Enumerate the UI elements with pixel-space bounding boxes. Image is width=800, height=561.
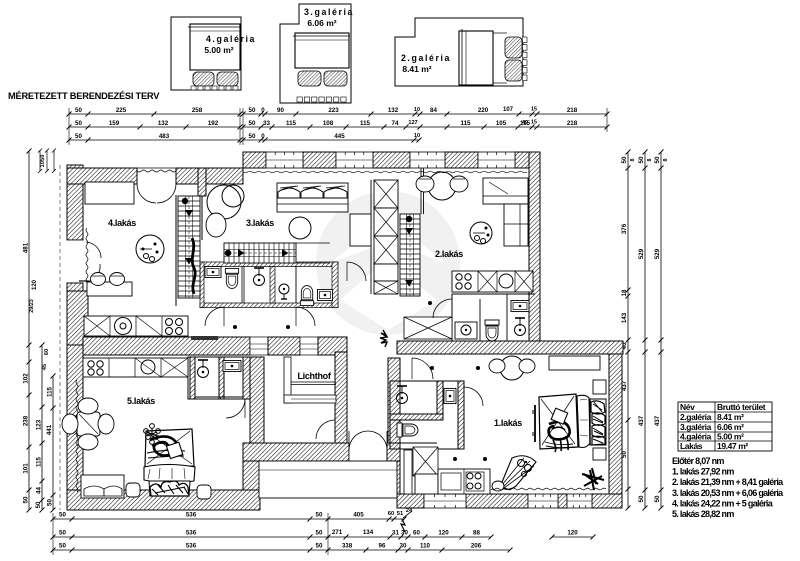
- svg-text:29/23: 29/23: [29, 299, 35, 313]
- svg-text:60: 60: [413, 530, 420, 537]
- svg-text:132: 132: [388, 107, 399, 114]
- svg-text:536: 536: [186, 530, 197, 537]
- svg-text:88: 88: [473, 530, 480, 537]
- svg-text:4.galéria: 4.galéria: [206, 34, 256, 44]
- svg-text:50: 50: [638, 156, 645, 163]
- svg-text:376: 376: [621, 223, 628, 234]
- svg-text:159: 159: [109, 120, 120, 127]
- svg-text:19.47 m²: 19.47 m²: [717, 441, 748, 451]
- svg-text:536: 536: [186, 543, 197, 550]
- svg-text:50: 50: [75, 133, 82, 140]
- svg-text:192: 192: [208, 120, 219, 127]
- svg-text:445: 445: [334, 133, 345, 140]
- svg-text:2.galéria: 2.galéria: [401, 53, 451, 63]
- svg-text:8: 8: [663, 159, 669, 162]
- svg-text:437: 437: [638, 415, 645, 426]
- svg-text:10: 10: [414, 133, 420, 139]
- svg-text:50: 50: [316, 512, 323, 519]
- svg-text:Lichthof: Lichthof: [297, 371, 331, 381]
- svg-text:90: 90: [277, 107, 284, 114]
- svg-text:Bruttó terület: Bruttó terület: [717, 402, 766, 412]
- svg-text:50: 50: [36, 501, 42, 508]
- svg-text:50: 50: [75, 120, 82, 127]
- svg-text:120: 120: [567, 530, 578, 537]
- svg-text:10: 10: [414, 107, 420, 113]
- svg-text:1. lakás 27,92 nm: 1. lakás 27,92 nm: [672, 467, 734, 477]
- svg-text:223: 223: [328, 107, 339, 114]
- svg-text:3. lakás 20,53 nm + 6,06 galér: 3. lakás 20,53 nm + 6,06 galéria: [672, 488, 784, 498]
- svg-text:50: 50: [249, 107, 256, 114]
- svg-text:50: 50: [59, 530, 66, 537]
- svg-text:338: 338: [342, 543, 353, 550]
- svg-text:MÉRETEZETT BERENDEZÉSI TERV: MÉRETEZETT BERENDEZÉSI TERV: [8, 91, 160, 101]
- svg-text:51: 51: [397, 511, 404, 517]
- svg-text:481: 481: [23, 242, 30, 253]
- svg-text:44: 44: [36, 487, 43, 494]
- svg-text:115: 115: [461, 120, 472, 127]
- svg-text:50: 50: [654, 495, 661, 502]
- svg-text:18: 18: [621, 289, 628, 296]
- svg-text:529: 529: [638, 248, 645, 259]
- svg-text:Előtér 8,07 nm: Előtér 8,07 nm: [672, 456, 724, 466]
- svg-text:3.galéria: 3.galéria: [680, 422, 712, 432]
- svg-text:8: 8: [630, 159, 636, 162]
- svg-text:437: 437: [654, 415, 661, 426]
- svg-text:50: 50: [621, 156, 628, 163]
- svg-text:102: 102: [23, 373, 30, 384]
- svg-text:45: 45: [42, 363, 48, 370]
- svg-text:271: 271: [332, 529, 343, 536]
- svg-text:50: 50: [638, 495, 645, 502]
- svg-text:1.lakás: 1.lakás: [494, 418, 522, 428]
- svg-text:120: 120: [32, 279, 38, 290]
- svg-text:50: 50: [316, 530, 323, 537]
- svg-text:536: 536: [186, 512, 197, 519]
- svg-text:108: 108: [323, 120, 334, 127]
- svg-text:6.06 m²: 6.06 m²: [717, 422, 744, 432]
- svg-text:5. lakás 28,82 nm: 5. lakás 28,82 nm: [672, 509, 734, 519]
- svg-text:218: 218: [567, 120, 578, 127]
- svg-text:0: 0: [261, 107, 265, 114]
- svg-text:33: 33: [263, 120, 270, 127]
- svg-text:105: 105: [496, 120, 507, 127]
- svg-text:3.galéria: 3.galéria: [304, 7, 354, 17]
- svg-text:123: 123: [36, 419, 43, 430]
- svg-text:Lakás: Lakás: [680, 441, 703, 451]
- svg-text:132: 132: [158, 120, 169, 127]
- svg-text:258: 258: [192, 107, 203, 114]
- svg-text:50: 50: [316, 543, 323, 550]
- svg-text:107: 107: [503, 107, 514, 113]
- svg-text:8.41 m²: 8.41 m²: [717, 412, 744, 422]
- svg-text:31: 31: [392, 530, 399, 537]
- svg-text:3.lakás: 3.lakás: [246, 218, 274, 228]
- svg-text:49: 49: [522, 120, 528, 126]
- svg-text:4.lakás: 4.lakás: [108, 218, 136, 228]
- svg-text:50: 50: [249, 133, 256, 140]
- svg-text:60: 60: [388, 511, 394, 517]
- svg-text:30: 30: [400, 543, 407, 550]
- svg-text:50: 50: [59, 543, 66, 550]
- svg-text:101: 101: [23, 463, 30, 474]
- svg-text:50: 50: [59, 512, 66, 519]
- svg-text:225: 225: [116, 107, 127, 114]
- svg-text:238: 238: [23, 415, 30, 426]
- svg-text:120: 120: [438, 530, 449, 537]
- svg-text:483: 483: [159, 133, 170, 140]
- svg-text:50: 50: [249, 120, 256, 127]
- svg-text:115: 115: [47, 386, 54, 397]
- svg-text:218: 218: [567, 107, 578, 114]
- svg-text:96: 96: [379, 543, 386, 550]
- svg-text:50: 50: [75, 107, 82, 114]
- svg-text:2.galéria: 2.galéria: [680, 412, 712, 422]
- svg-text:50: 50: [23, 496, 30, 503]
- svg-text:1050: 1050: [40, 155, 46, 168]
- svg-text:84: 84: [430, 107, 437, 114]
- svg-text:5.00 m²: 5.00 m²: [717, 432, 744, 442]
- svg-text:74: 74: [392, 120, 399, 127]
- svg-text:4. lakás 24,22 nm + 5 galéria: 4. lakás 24,22 nm + 5 galéria: [672, 498, 774, 508]
- svg-text:8.41 m²: 8.41 m²: [402, 64, 431, 74]
- svg-text:2.lakás: 2.lakás: [435, 249, 463, 259]
- svg-text:441: 441: [46, 424, 53, 435]
- svg-text:6.06 m²: 6.06 m²: [307, 18, 336, 28]
- svg-text:8: 8: [647, 159, 653, 162]
- svg-text:143: 143: [621, 312, 628, 323]
- svg-text:220: 220: [478, 107, 489, 114]
- svg-text:15: 15: [531, 120, 537, 126]
- svg-text:4.galéria: 4.galéria: [680, 432, 712, 442]
- svg-text:110: 110: [420, 543, 431, 550]
- svg-text:115: 115: [360, 120, 371, 127]
- svg-text:115: 115: [286, 120, 297, 127]
- svg-text:529: 529: [654, 248, 661, 259]
- svg-text:50: 50: [654, 156, 661, 163]
- svg-text:2. lakás 21,39 nm + 8,41 galér: 2. lakás 21,39 nm + 8,41 galéria: [672, 477, 784, 487]
- svg-text:50: 50: [47, 499, 54, 506]
- svg-text:Név: Név: [680, 402, 695, 412]
- svg-text:15: 15: [531, 107, 537, 113]
- svg-text:60: 60: [44, 349, 50, 355]
- svg-text:5.lakás: 5.lakás: [127, 396, 155, 406]
- svg-text:115: 115: [36, 456, 43, 467]
- svg-text:134: 134: [363, 529, 374, 536]
- svg-text:405: 405: [353, 512, 364, 519]
- svg-text:0: 0: [261, 133, 265, 140]
- svg-text:206: 206: [471, 543, 482, 550]
- svg-text:127: 127: [408, 120, 417, 126]
- svg-text:5.00 m²: 5.00 m²: [204, 45, 233, 55]
